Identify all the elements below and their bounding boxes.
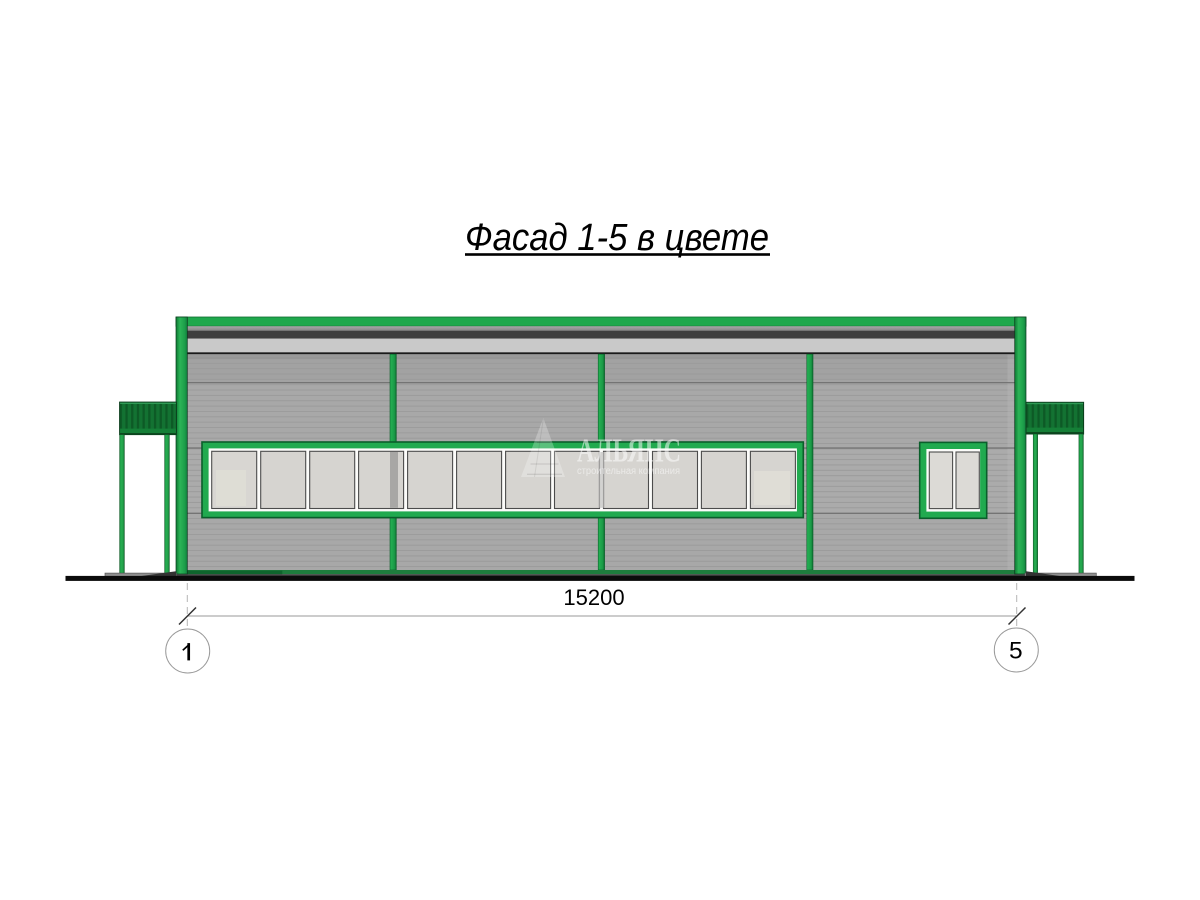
svg-text:5: 5 [1009, 638, 1023, 665]
svg-text:Фасад 1-5 в цвете: Фасад 1-5 в цвете [465, 217, 769, 259]
svg-text:АЛЬЯНС: АЛЬЯНС [577, 433, 681, 470]
svg-text:15200: 15200 [563, 585, 624, 610]
svg-text:строительная компания: строительная компания [577, 466, 680, 477]
